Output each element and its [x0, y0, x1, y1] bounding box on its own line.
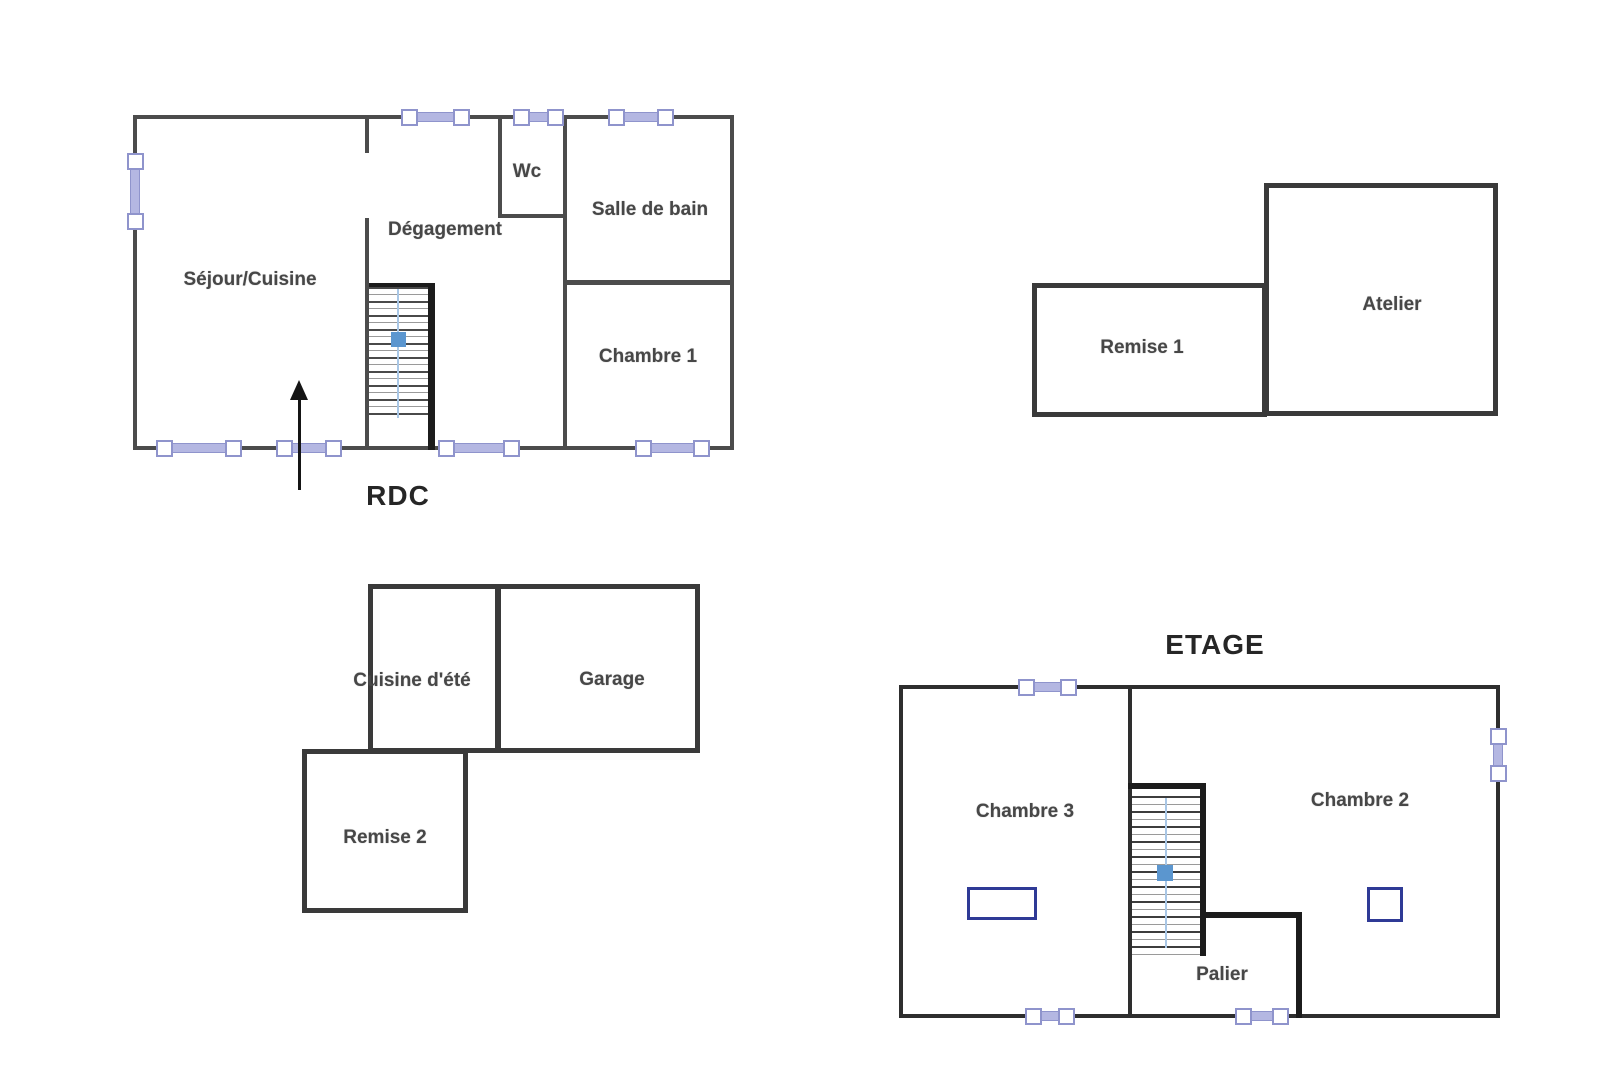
room-label-wc: Wc — [513, 161, 542, 183]
stair-wall — [1128, 783, 1206, 789]
window-cap — [635, 440, 652, 457]
window-cap — [1235, 1008, 1252, 1025]
roof-window-symbol — [967, 887, 1037, 920]
window-symbol — [1235, 1005, 1289, 1027]
stair-wall — [369, 283, 435, 287]
window-cap — [127, 153, 144, 170]
room-label-atelier: Atelier — [1362, 294, 1421, 316]
window-symbol — [124, 153, 146, 230]
window-symbol — [156, 437, 242, 459]
window-cap — [1025, 1008, 1042, 1025]
room-label-remise-1: Remise 1 — [1100, 337, 1183, 359]
window-cap — [453, 109, 470, 126]
window-cap — [513, 109, 530, 126]
window-cap — [276, 440, 293, 457]
floor-plan-canvas: Séjour/Cuisine Dégagement Wc Salle de ba… — [0, 0, 1600, 1076]
window-cap — [401, 109, 418, 126]
room-label-chambre-3: Chambre 3 — [976, 801, 1074, 823]
stair-direction-marker-icon — [1157, 865, 1173, 881]
room-label-chambre-1: Chambre 1 — [599, 346, 697, 368]
window-cap — [127, 213, 144, 230]
window-symbol — [438, 437, 520, 459]
room-label-chambre-2: Chambre 2 — [1311, 790, 1409, 812]
roof-window-symbol — [1367, 887, 1403, 922]
window-cap — [1060, 679, 1077, 696]
room-label-garage: Garage — [579, 669, 644, 691]
palier-wall — [1296, 912, 1302, 1018]
window-cap — [225, 440, 242, 457]
wall — [365, 115, 369, 153]
window-cap — [503, 440, 520, 457]
arrow-shaft — [298, 396, 301, 490]
room-label-sejour-cuisine: Séjour/Cuisine — [183, 269, 316, 291]
room-label-palier: Palier — [1196, 964, 1248, 986]
stair-wall — [1200, 783, 1206, 956]
window-cap — [547, 109, 564, 126]
window-symbol — [513, 106, 564, 128]
window-cap — [608, 109, 625, 126]
room-label-degagement: Dégagement — [388, 219, 502, 241]
window-cap — [438, 440, 455, 457]
wall — [567, 280, 734, 285]
arrow-head — [290, 380, 308, 400]
window-cap — [1058, 1008, 1075, 1025]
window-symbol — [401, 106, 470, 128]
window-cap — [693, 440, 710, 457]
room-label-remise-2: Remise 2 — [343, 827, 426, 849]
palier-wall — [1200, 912, 1302, 918]
window-symbol — [608, 106, 674, 128]
window-symbol — [1487, 728, 1509, 782]
window-symbol — [1018, 676, 1077, 698]
window-cap — [1490, 728, 1507, 745]
window-cap — [156, 440, 173, 457]
floor-title-rdc: RDC — [366, 480, 430, 512]
floor-title-etage: ETAGE — [1165, 629, 1264, 661]
wall — [498, 115, 502, 218]
window-symbol — [1025, 1005, 1075, 1027]
window-cap — [657, 109, 674, 126]
wall — [498, 214, 567, 218]
room-cuisine-ete — [368, 584, 500, 753]
stair-wall — [428, 283, 435, 450]
window-symbol — [635, 437, 710, 459]
stair-direction-marker-icon — [391, 332, 406, 347]
room-label-cuisine-ete: Cuisine d'été — [353, 670, 471, 692]
stair-handrail — [397, 289, 399, 418]
window-symbol — [276, 437, 342, 459]
window-cap — [1018, 679, 1035, 696]
room-label-salle-de-bain: Salle de bain — [592, 199, 708, 221]
window-cap — [1272, 1008, 1289, 1025]
window-cap — [325, 440, 342, 457]
window-cap — [1490, 765, 1507, 782]
